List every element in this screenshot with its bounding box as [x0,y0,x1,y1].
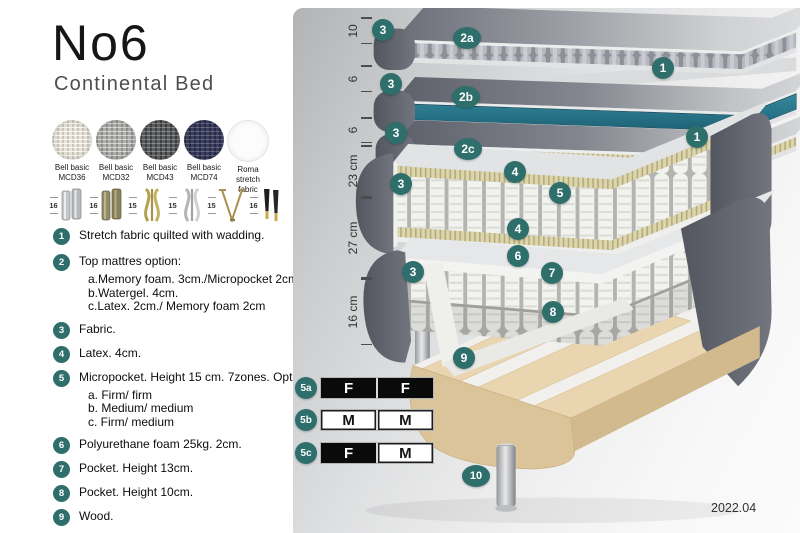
callout-badge-1: 1 [686,126,708,148]
callout-badge-9: 9 [453,347,475,369]
legend-number-badge: 4 [53,346,70,363]
firmness-cell: M [378,443,433,463]
legend-number-badge: 1 [53,228,70,245]
leg-height: 16 [89,194,97,217]
fabric-swatch-circle [96,120,136,160]
legend-number-badge: 8 [53,485,70,502]
legend-sublist: a. Firm/ firm b. Medium/ medium c. Firm/… [79,389,295,430]
fabric-name: Bell basic [99,163,133,172]
product-subtitle: Continental Bed [54,73,214,96]
twisted-gold-leg-icon [139,186,165,224]
callout-badge-3: 3 [380,73,402,95]
cylinder-silver-leg-icon [60,186,84,224]
front-metal-leg [495,443,517,511]
fabric-code: MCD36 [58,173,85,182]
legend-item-7: 7 Pocket. Height 13cm. [53,461,295,478]
fabric-swatch-circle [227,120,269,162]
leg-options: 16 16 15 [47,183,286,227]
legend-item-9: 9 Wood. [53,509,295,526]
legend-text: Polyurethane foam 25kg. 2cm. [79,437,242,454]
tapered-black-leg-icon [260,186,284,224]
legend-number-badge: 9 [53,509,70,526]
ruler-segment: 27 cm [345,197,375,278]
legend-text: Stretch fabric quilted with wadding. [79,228,264,245]
ruler-label: 23 cm [346,155,360,188]
product-title: No6 [52,14,150,72]
leg-option: 16 [247,183,286,227]
legend-text: Top mattres option: [79,254,181,271]
callout-badge-5: 5 [549,182,571,204]
leg-height: 15 [128,194,136,217]
leg-height: 15 [168,194,176,217]
floor-shadow [366,498,740,524]
legend-subitem: a.Memory foam. 3cm./Micropocket 2cm [88,273,295,287]
firmness-row-badge: 5b [295,409,317,431]
legend-item-3: 3 Fabric. [53,322,295,339]
callout-badge-2a: 2a [453,27,481,49]
legend-list: 1 Stretch fabric quilted with wadding. 2… [53,228,295,533]
callout-badge-10: 10 [462,465,490,487]
cylinder-brass-leg-icon [100,186,124,224]
callout-badge-3: 3 [402,261,424,283]
bed-diagram-panel: 10 6 6 23 cm 27 cm 16 cm 3 2a 1 3 2b 3 2… [293,8,800,533]
legend-text: Wood. [79,509,113,526]
callout-badge-4: 4 [507,218,529,240]
hairpin-gold-leg-icon [218,186,246,224]
bed-product-sheet: No6 Continental Bed Bell basicMCD36 Bell… [0,0,800,533]
leg-option: 15 [127,183,166,227]
fabric-code: MCD32 [102,173,129,182]
firmness-row-5b: 5b M M [295,409,434,431]
legend-subitem: b. Medium/ medium [88,402,295,416]
callout-badge-7: 7 [541,262,563,284]
callout-badge-3: 3 [390,173,412,195]
firmness-cell: M [321,410,376,430]
legend-text: Pocket. Height 13cm. [79,461,193,478]
leg-height: 16 [249,194,257,217]
fabric-code: MCD74 [190,173,217,182]
legend-text: Latex. 4cm. [79,346,141,363]
ruler-label: 10 [346,24,360,37]
ruler-label: 16 cm [346,295,360,328]
fabric-swatch-circle [184,120,224,160]
legend-item-8: 8 Pocket. Height 10cm. [53,485,295,502]
callout-badge-2b: 2b [452,86,480,108]
ruler-label: 6 [346,75,360,82]
twisted-silver-leg-icon [179,186,205,224]
firmness-cell: M [378,410,433,430]
fabric-name: Bell basic [143,163,177,172]
callout-badge-2c: 2c [454,138,482,160]
fabric-swatch-circle [140,120,180,160]
ruler-segment: 10 [345,17,375,44]
firmness-cell: F [321,378,376,398]
legend-subitem: c. Firm/ medium [88,416,295,430]
legend-item-4: 4 Latex. 4cm. [53,346,295,363]
legend-number-badge: 6 [53,437,70,454]
callout-badge-8: 8 [542,301,564,323]
fabric-name: Roma [237,165,258,174]
firmness-row-5a: 5a F F [295,377,434,399]
leg-height: 16 [49,194,57,217]
fabric-swatch-circle [52,120,92,160]
callout-badge-3: 3 [372,19,394,41]
firmness-cell: F [321,443,376,463]
ruler-segment: 16 cm [345,278,375,345]
callout-badge-4: 4 [504,161,526,183]
legend-subitem: b.Watergel. 4cm. [88,287,295,301]
leg-height: 15 [207,194,215,217]
leg-option: 16 [47,183,86,227]
callout-badge-6: 6 [507,245,529,267]
info-panel: No6 Continental Bed Bell basicMCD36 Bell… [0,0,293,533]
version-date: 2022.04 [711,501,756,515]
legend-number-badge: 5 [53,370,70,387]
legend-sublist: a.Memory foam. 3cm./Micropocket 2cm b.Wa… [79,273,295,314]
legend-item-2: 2 Top mattres option: [53,254,295,271]
legend-text: Micropocket. Height 15 cm. 7zones. Optio… [79,370,312,387]
leg-option: 15 [167,183,206,227]
ruler-segment: 6 [345,65,375,92]
leg-option: 16 [87,183,126,227]
legend-subitem: a. Firm/ firm [88,389,295,403]
legend-item-6: 6 Polyurethane foam 25kg. 2cm. [53,437,295,454]
legend-subitem: c.Latex. 2cm./ Memory foam 2cm [88,300,295,314]
ruler-segment: 6 [345,117,375,143]
legend-item-5: 5 Micropocket. Height 15 cm. 7zones. Opt… [53,370,295,387]
legend-text: Pocket. Height 10cm. [79,485,193,502]
fabric-name: Bell basic [187,163,221,172]
fabric-code: MCD43 [146,173,173,182]
legend-number-badge: 2 [53,254,70,271]
fabric-name: Bell basic [55,163,89,172]
firmness-cell: F [378,378,433,398]
ruler-label: 27 cm [346,221,360,254]
firmness-row-5c: 5c F M [295,442,434,464]
callout-badge-1: 1 [652,57,674,79]
ruler-segment: 23 cm [345,145,375,197]
firmness-row-badge: 5a [295,377,317,399]
legend-text: Fabric. [79,322,116,339]
ruler-label: 6 [346,127,360,134]
callout-badge-3: 3 [385,122,407,144]
firmness-row-badge: 5c [295,442,317,464]
legend-number-badge: 3 [53,322,70,339]
legend-number-badge: 7 [53,461,70,478]
legend-item-1: 1 Stretch fabric quilted with wadding. [53,228,295,245]
leg-option: 15 [207,183,246,227]
